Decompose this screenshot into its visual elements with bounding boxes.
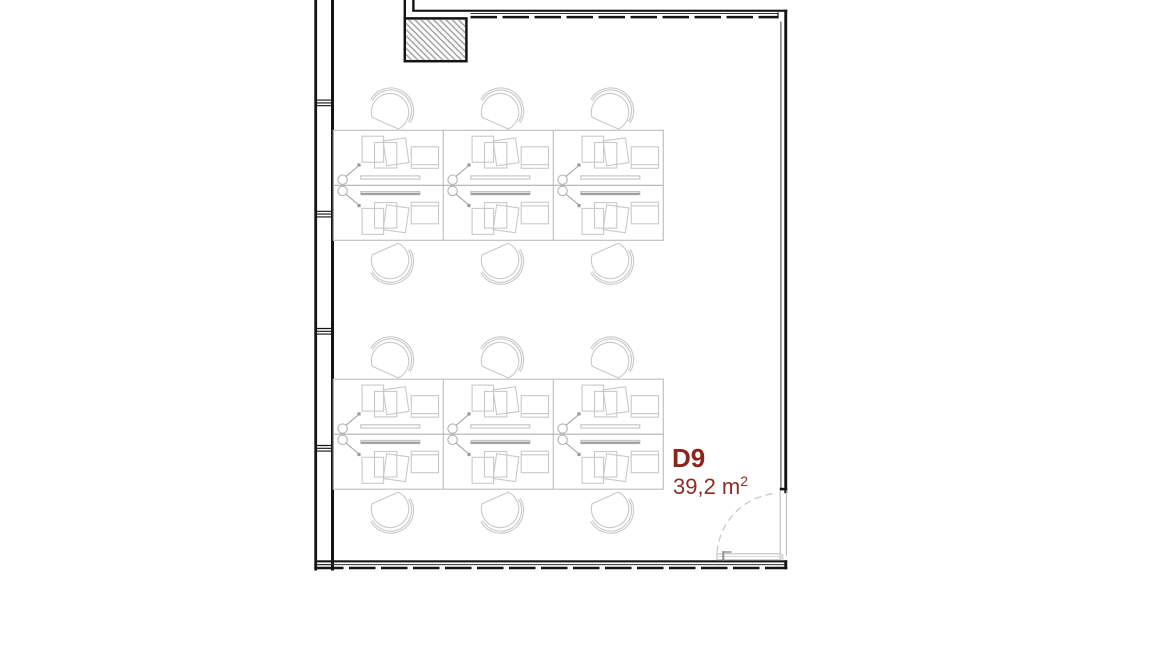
svg-text:D9: D9	[672, 443, 705, 473]
svg-text:39,2 m2: 39,2 m2	[673, 473, 748, 499]
